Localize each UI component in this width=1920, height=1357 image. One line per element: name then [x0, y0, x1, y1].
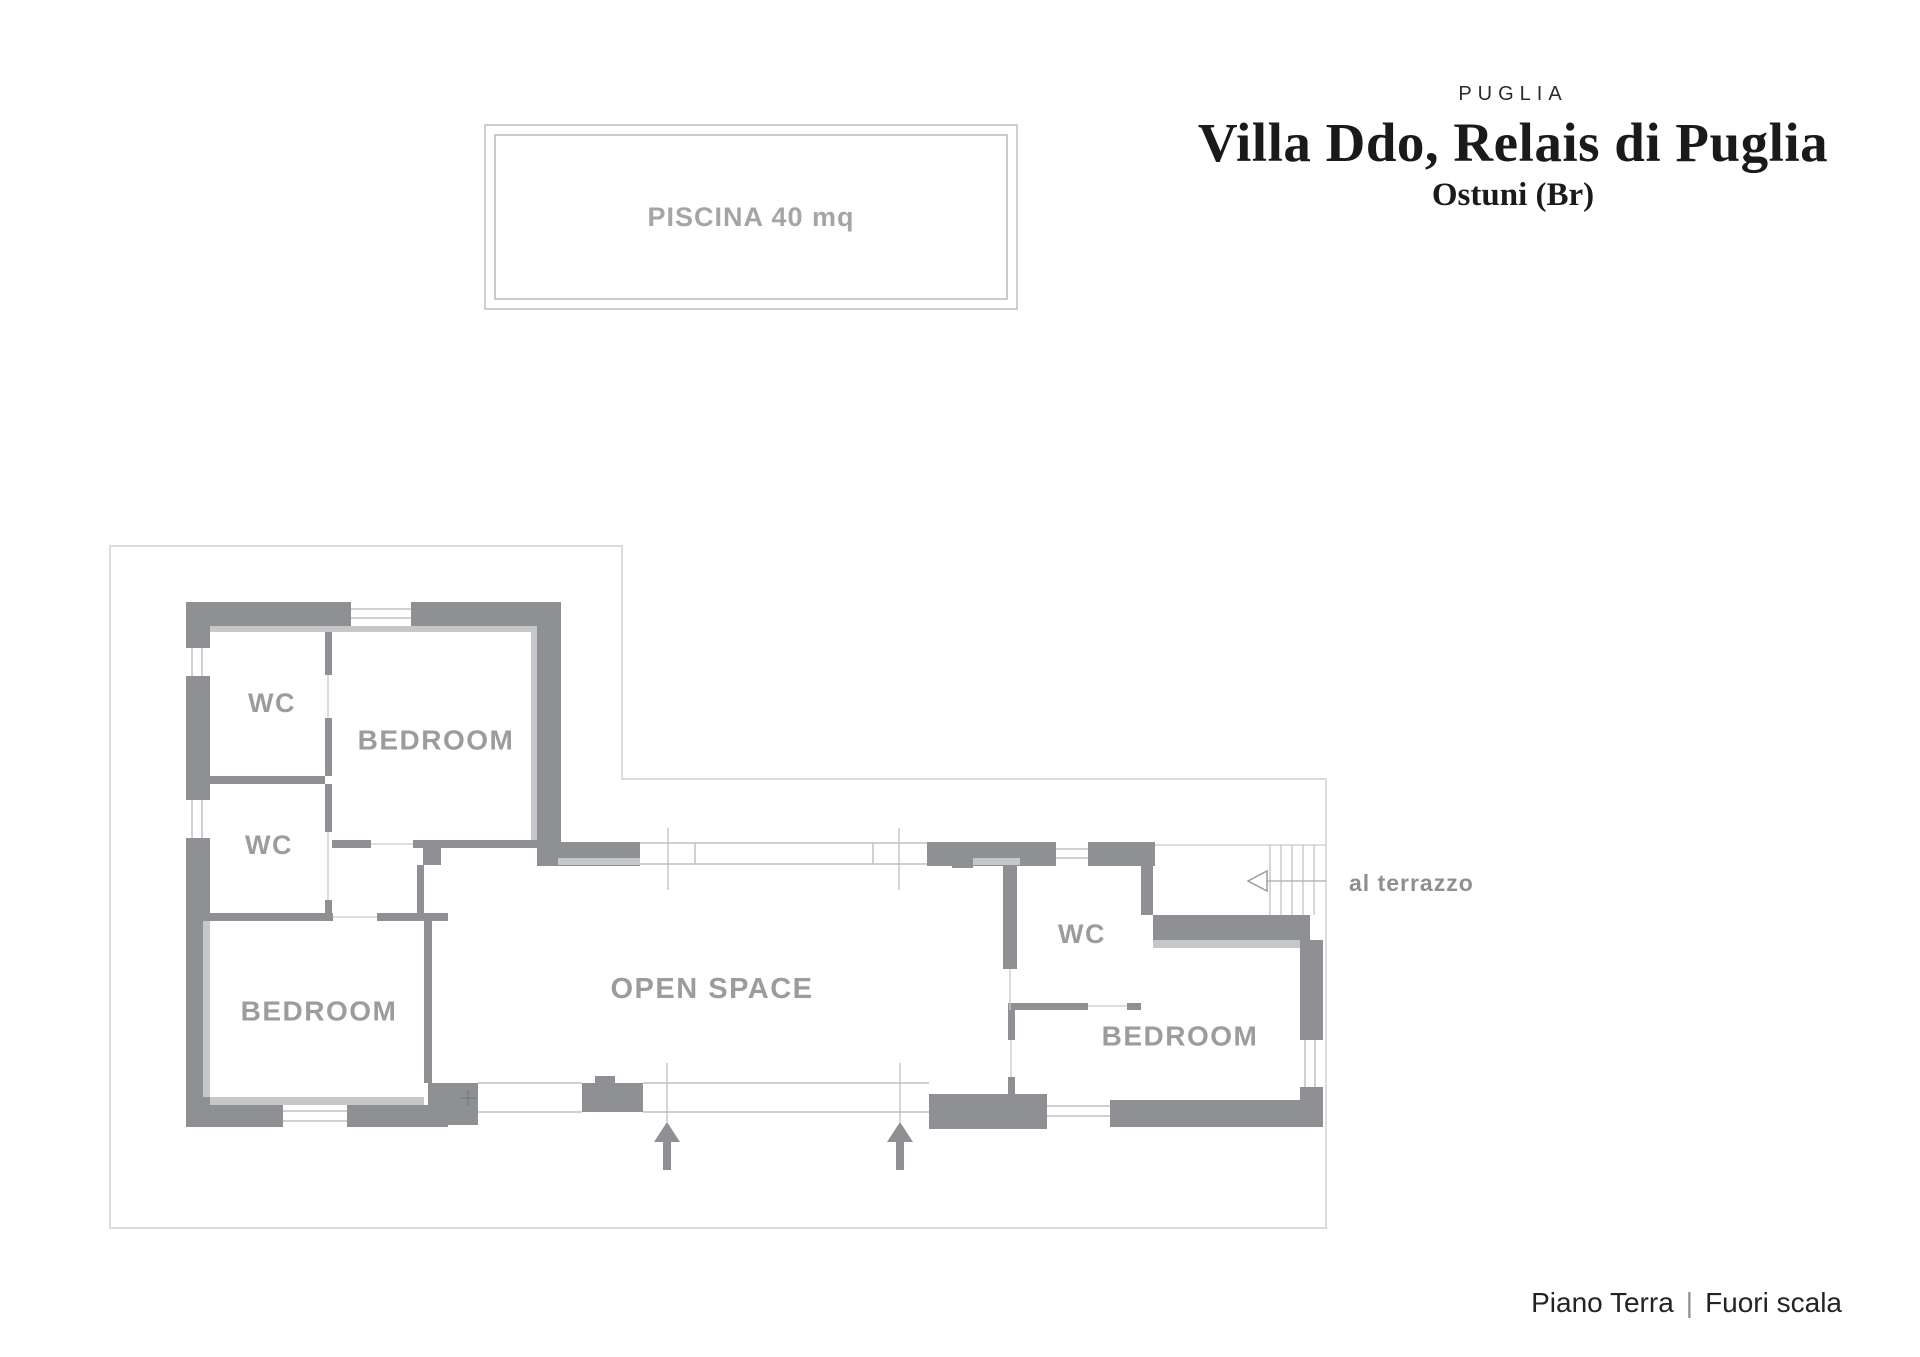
room-label-wc-top: WC	[248, 688, 296, 718]
terrace-stairs-icon	[1155, 845, 1326, 915]
floor-plan: WC BEDROOM WC BEDROOM OPEN SPACE WC BEDR…	[0, 0, 1920, 1357]
scale-label: Fuori scala	[1705, 1287, 1842, 1318]
room-label-bedroom-top: BEDROOM	[358, 725, 515, 756]
room-label-bedroom-right: BEDROOM	[1102, 1021, 1259, 1052]
room-label-bedroom-left: BEDROOM	[241, 996, 398, 1027]
stairs-direction-arrowhead-icon	[1248, 871, 1267, 891]
entrance-arrow-icon	[887, 1122, 913, 1170]
floor-label: Piano Terra	[1531, 1287, 1674, 1318]
page: PUGLIA Villa Ddo, Relais di Puglia Ostun…	[0, 0, 1920, 1357]
terrace-note-label: al terrazzo	[1349, 870, 1474, 896]
room-label-wc-mid: WC	[245, 830, 293, 860]
room-label-open-space: OPEN SPACE	[610, 973, 813, 1005]
entrance-arrow-icons	[654, 1122, 913, 1170]
footer-caption: Piano Terra|Fuori scala	[1531, 1287, 1842, 1319]
footer-separator: |	[1674, 1287, 1705, 1318]
room-label-wc-right: WC	[1058, 919, 1106, 949]
entrance-arrow-icon	[654, 1122, 680, 1170]
